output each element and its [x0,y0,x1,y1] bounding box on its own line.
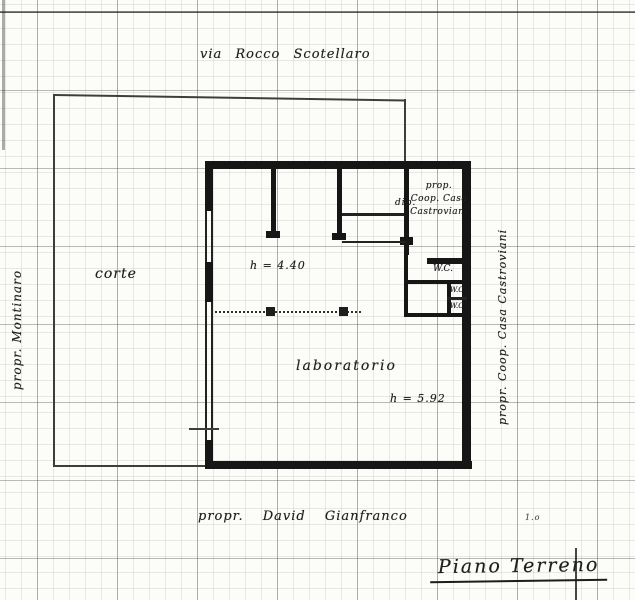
coop-room-label: prop. Coop. Casa Castroviani [409,180,469,219]
floorplan-sheet: via Rocco Scotellaro propr. Montinaro pr… [0,0,635,600]
owner-left-label: propr. Montinaro [10,265,30,395]
wall-interior-v1 [271,169,276,233]
wall-wc-bottom [404,280,471,284]
height-laboratory-label: h = 5.92 [390,392,446,405]
wall-interior-v2-foot [332,233,346,240]
wall-sanitary-divider [447,297,467,300]
wall-interior-v2 [337,169,342,235]
wall-left-block-top [205,161,213,211]
wall-room-divider-h [342,213,404,216]
coop-room-line1: prop. [409,180,469,193]
courtyard-label: corte [95,266,137,282]
coop-side-label: dip. [395,198,416,208]
pillar-1 [266,307,275,316]
wall-left-block-mid [205,262,213,302]
left-edge-smudge [2,0,5,150]
courtyard-top-line [54,94,406,102]
wall-sanitary-bottom [404,313,471,317]
wc-small-top-label: W.C. [450,286,466,294]
owner-right-label: propr. Coop. Casa Castroviani [496,235,516,425]
wc-main-label: W.C. [433,264,453,274]
note-mark: 1.o [525,513,540,522]
plan-title: Piano Terreno [430,554,608,583]
coop-room-line3: Castroviani [409,206,469,219]
laboratory-label: laboratorio [296,358,397,374]
wall-interior-v1-foot [266,231,280,238]
courtyard-left-line [53,94,55,467]
owner-bottom-label: propr. David Gianfranco [198,509,408,524]
wall-sanitary-left [404,284,408,316]
courtyard-bottom-line [53,465,208,467]
wall-left-tick [189,428,219,430]
wall-top [205,161,471,169]
coop-room-line2: Coop. Casa [409,193,469,206]
pillar-2 [339,307,348,316]
wc-small-bottom-label: W.C. [450,302,466,310]
courtyard-right-line [404,99,406,163]
street-label: via Rocco Scotellaro [200,47,371,62]
wall-bottom [205,461,472,469]
wall-wc-left-v [404,255,408,284]
height-courtyard-label: h = 4.40 [250,259,306,272]
wall-corridor-bottom [342,241,406,243]
top-rule-line [0,11,635,13]
